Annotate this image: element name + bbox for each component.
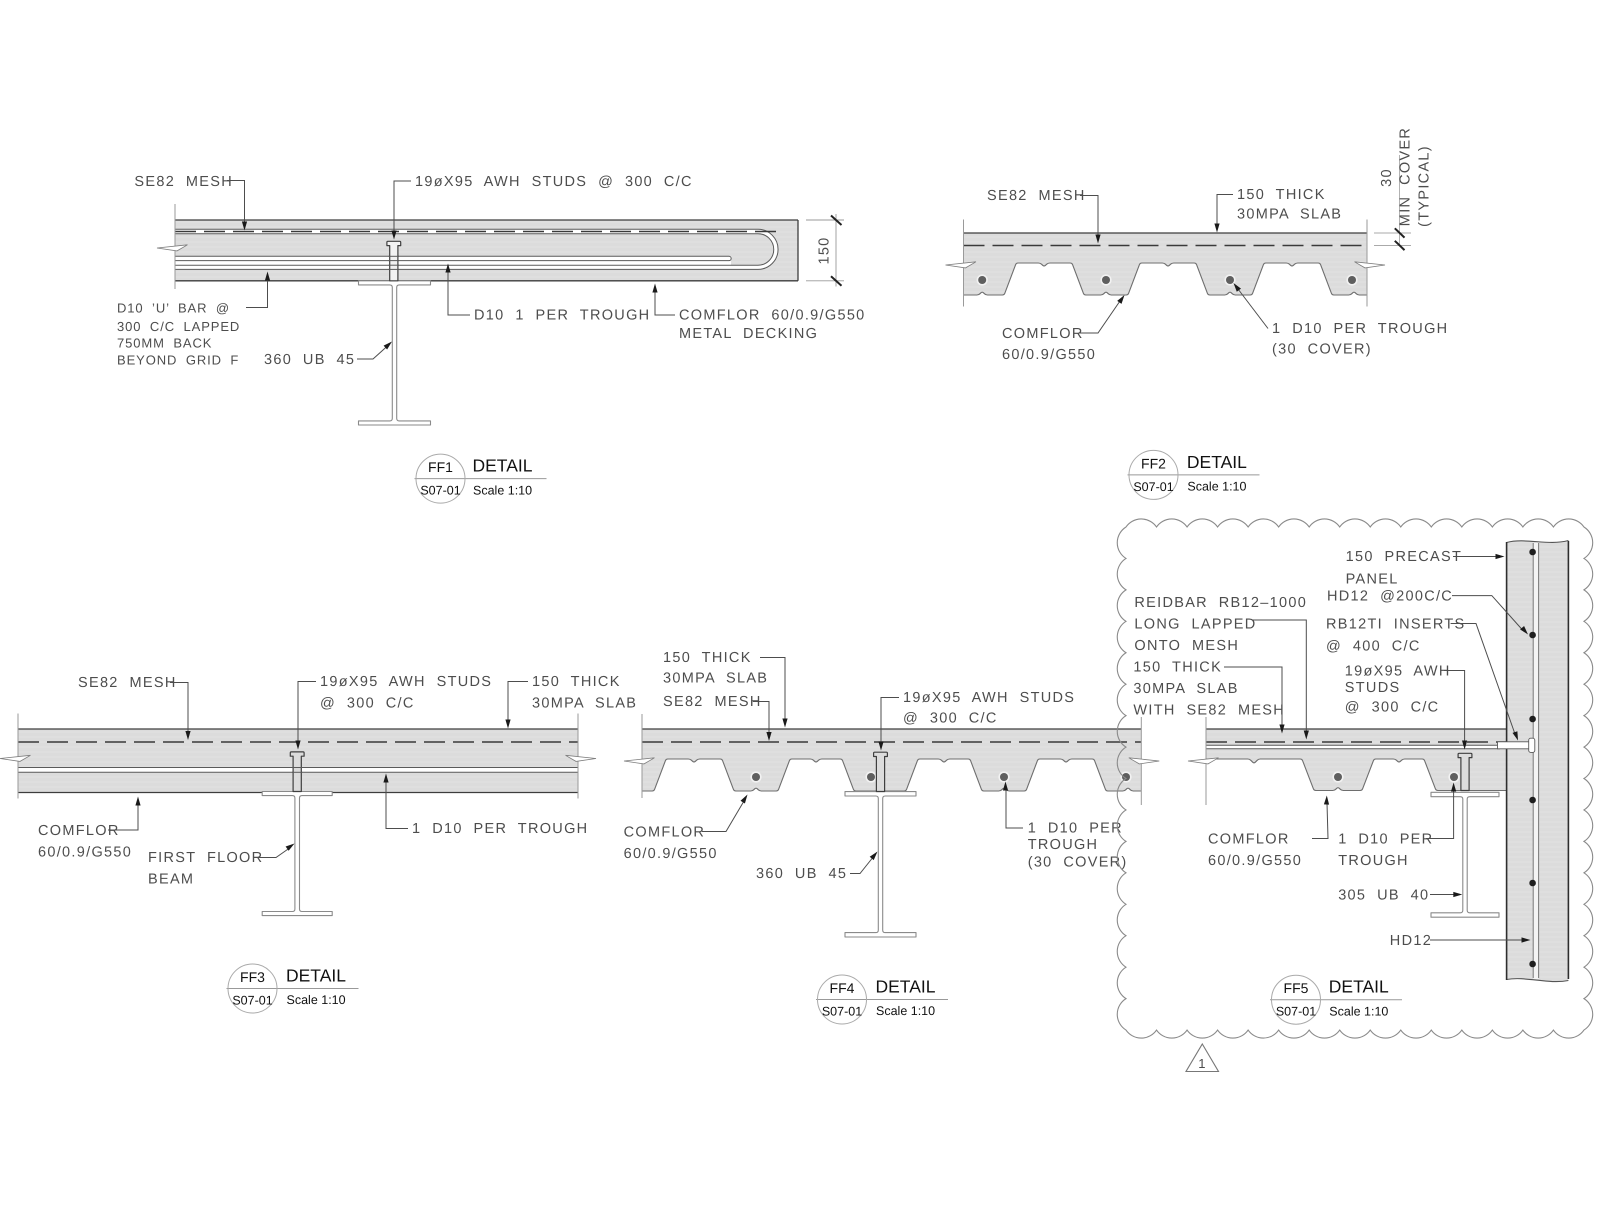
svg-text:RB12TI INSERTS: RB12TI INSERTS	[1326, 617, 1465, 633]
svg-text:TROUGH: TROUGH	[1338, 853, 1409, 869]
svg-text:30: 30	[1379, 168, 1395, 187]
svg-text:REIDBAR RB12–1000: REIDBAR RB12–1000	[1134, 595, 1307, 611]
svg-text:COMFLOR: COMFLOR	[624, 825, 706, 841]
svg-text:19øX95 AWH: 19øX95 AWH	[1345, 664, 1451, 680]
svg-text:@ 400 C/C: @ 400 C/C	[1326, 639, 1421, 655]
svg-text:FIRST FLOOR: FIRST FLOOR	[148, 850, 263, 866]
svg-text:FF5: FF5	[1284, 980, 1309, 996]
svg-text:SE82 MESH: SE82 MESH	[78, 675, 177, 691]
svg-text:MIN COVER: MIN COVER	[1398, 127, 1414, 226]
svg-text:S07-01: S07-01	[822, 1005, 862, 1019]
svg-text:19øX95 AWH STUDS: 19øX95 AWH STUDS	[320, 674, 492, 690]
svg-text:750MM BACK: 750MM BACK	[117, 336, 212, 351]
svg-text:1 D10 PER TROUGH: 1 D10 PER TROUGH	[1272, 321, 1448, 337]
svg-text:DETAIL: DETAIL	[1329, 977, 1389, 997]
svg-text:60/0.9/G550: 60/0.9/G550	[1208, 853, 1302, 869]
svg-text:DETAIL: DETAIL	[876, 977, 936, 997]
svg-text:Scale 1:10: Scale 1:10	[473, 483, 532, 497]
svg-text:360 UB 45: 360 UB 45	[756, 866, 847, 882]
svg-text:FF1: FF1	[428, 459, 453, 475]
svg-text:PANEL: PANEL	[1346, 572, 1399, 588]
svg-text:S07-01: S07-01	[1133, 480, 1173, 494]
svg-text:60/0.9/G550: 60/0.9/G550	[624, 846, 718, 862]
svg-text:(30 COVER): (30 COVER)	[1272, 342, 1372, 358]
svg-text:150: 150	[817, 236, 833, 264]
svg-text:D10 1 PER TROUGH: D10 1 PER TROUGH	[474, 308, 650, 324]
svg-text:19øX95 AWH STUDS @ 300 C/C: 19øX95 AWH STUDS @ 300 C/C	[415, 174, 693, 190]
svg-text:1 D10 PER: 1 D10 PER	[1028, 821, 1123, 837]
svg-text:D10 ’U’ BAR @: D10 ’U’ BAR @	[117, 300, 230, 315]
svg-text:150 PRECAST: 150 PRECAST	[1346, 549, 1463, 565]
svg-text:FF4: FF4	[830, 980, 855, 996]
svg-text:FF2: FF2	[1141, 455, 1166, 471]
svg-text:DETAIL: DETAIL	[473, 456, 533, 476]
svg-text:METAL DECKING: METAL DECKING	[679, 326, 818, 342]
svg-text:30MPA SLAB: 30MPA SLAB	[1237, 207, 1342, 223]
svg-text:19øX95 AWH STUDS: 19øX95 AWH STUDS	[903, 690, 1075, 706]
svg-text:300 C/C LAPPED: 300 C/C LAPPED	[117, 319, 240, 334]
svg-text:1 D10 PER: 1 D10 PER	[1338, 832, 1433, 848]
svg-text:COMFLOR 60/0.9/G550: COMFLOR 60/0.9/G550	[679, 308, 866, 324]
svg-text:Scale 1:10: Scale 1:10	[1187, 480, 1246, 494]
svg-text:(TYPICAL): (TYPICAL)	[1417, 145, 1433, 227]
svg-text:LONG LAPPED: LONG LAPPED	[1134, 617, 1256, 633]
svg-text:360 UB 45: 360 UB 45	[264, 352, 355, 368]
svg-text:STUDS: STUDS	[1345, 680, 1401, 696]
svg-text:305 UB 40: 305 UB 40	[1338, 888, 1429, 904]
svg-text:150 THICK: 150 THICK	[1237, 187, 1326, 203]
svg-text:S07-01: S07-01	[232, 994, 272, 1008]
svg-text:DETAIL: DETAIL	[1187, 452, 1247, 472]
svg-text:30MPA SLAB: 30MPA SLAB	[663, 671, 768, 687]
svg-text:(30 COVER): (30 COVER)	[1028, 855, 1128, 871]
svg-text:S07-01: S07-01	[420, 484, 460, 498]
svg-text:1: 1	[1198, 1056, 1206, 1071]
svg-text:Scale 1:10: Scale 1:10	[287, 993, 346, 1007]
svg-text:1 D10 PER TROUGH: 1 D10 PER TROUGH	[412, 821, 588, 837]
svg-text:150 THICK: 150 THICK	[1133, 660, 1222, 676]
svg-text:BEAM: BEAM	[148, 872, 194, 888]
svg-text:HD12 @200C/C: HD12 @200C/C	[1327, 589, 1453, 605]
svg-text:Scale 1:10: Scale 1:10	[876, 1004, 935, 1018]
svg-text:S07-01: S07-01	[1276, 1005, 1316, 1019]
svg-text:TROUGH: TROUGH	[1028, 837, 1099, 853]
svg-text:BEYOND GRID F: BEYOND GRID F	[117, 352, 239, 367]
svg-text:SE82 MESH: SE82 MESH	[987, 188, 1086, 204]
svg-text:SE82 MESH: SE82 MESH	[663, 694, 762, 710]
svg-text:30MPA SLAB: 30MPA SLAB	[1133, 681, 1238, 697]
svg-text:60/0.9/G550: 60/0.9/G550	[38, 845, 132, 861]
svg-text:ONTO MESH: ONTO MESH	[1134, 638, 1239, 654]
svg-text:FF3: FF3	[240, 969, 265, 985]
svg-text:COMFLOR: COMFLOR	[38, 823, 120, 839]
svg-text:60/0.9/G550: 60/0.9/G550	[1002, 347, 1096, 363]
svg-text:150 THICK: 150 THICK	[532, 674, 621, 690]
svg-text:@ 300 C/C: @ 300 C/C	[1345, 700, 1440, 716]
svg-text:COMFLOR: COMFLOR	[1208, 832, 1290, 848]
svg-text:150 THICK: 150 THICK	[663, 650, 752, 666]
svg-text:Scale 1:10: Scale 1:10	[1329, 1004, 1388, 1018]
svg-text:SE82 MESH: SE82 MESH	[134, 174, 233, 190]
svg-text:@ 300 C/C: @ 300 C/C	[903, 711, 998, 727]
svg-text:30MPA SLAB: 30MPA SLAB	[532, 696, 637, 712]
svg-text:WITH SE82 MESH: WITH SE82 MESH	[1133, 703, 1285, 719]
svg-text:@ 300 C/C: @ 300 C/C	[320, 696, 415, 712]
svg-text:DETAIL: DETAIL	[286, 966, 346, 986]
svg-text:HD12: HD12	[1390, 933, 1432, 949]
svg-text:COMFLOR: COMFLOR	[1002, 326, 1084, 342]
